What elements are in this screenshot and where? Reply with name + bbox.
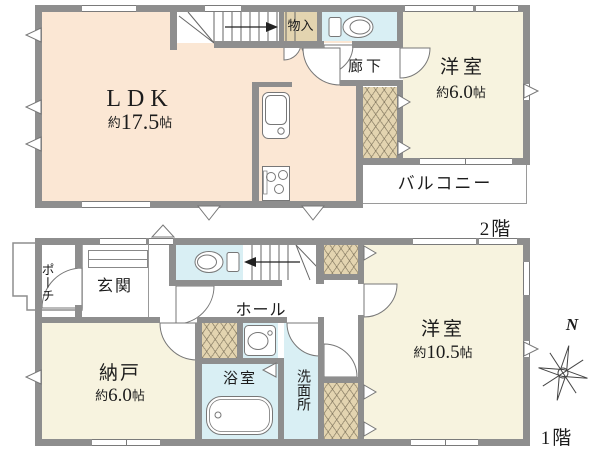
floor-label-1f: 1階 [526, 427, 588, 449]
casement-window-icon [152, 225, 174, 237]
room-label-balcony: バルコニー [385, 172, 505, 194]
folding-door-icon [398, 95, 410, 109]
room-label-storage-room: 納戸 [94, 362, 146, 384]
compass-icon [533, 340, 594, 405]
room-area-western-2f: 約6.0帖 [416, 82, 506, 102]
folding-door-icon [364, 385, 376, 399]
room-label-hall: ホール [228, 300, 294, 321]
casement-window-icon [26, 137, 41, 151]
room-area-ldk: 約17.5帖 [94, 111, 186, 133]
compass-north-label: N [550, 314, 594, 334]
casement-window-icon [524, 342, 538, 356]
casement-window-icon [26, 28, 41, 42]
room-area-storage-room: 約6.0帖 [90, 385, 150, 405]
room-label-entrance: 玄関 [88, 276, 142, 297]
casement-window-icon [26, 370, 41, 384]
casement-window-icon [198, 206, 220, 220]
floor-label-2f: 2階 [465, 218, 527, 240]
room-label-bathroom: 浴室 [216, 369, 264, 389]
room-label-corridor: 廊下 [330, 58, 402, 77]
room-label-porch: ポーチ [36, 246, 58, 318]
room-label-western-2f: 洋室 [421, 56, 505, 78]
room-label-washroom: 洗面所 [290, 348, 314, 432]
room-area-western-1f: 約10.5帖 [405, 342, 481, 362]
folding-door-icon [398, 141, 410, 155]
bath-door-icon [263, 363, 276, 377]
folding-door-icon [364, 422, 376, 436]
room-label-storage-2f: 物入 [283, 17, 318, 34]
casement-window-icon [26, 100, 41, 114]
casement-window-icon [302, 206, 324, 220]
folding-door-icon [364, 246, 376, 260]
casement-window-icon [524, 84, 538, 98]
room-label-western-1f: 洋室 [413, 318, 473, 341]
floor-plan: LDK 約17.5帖 物入 廊下 洋室 約6.0帖 バルコニー 2階 ポーチ 玄… [0, 0, 600, 450]
